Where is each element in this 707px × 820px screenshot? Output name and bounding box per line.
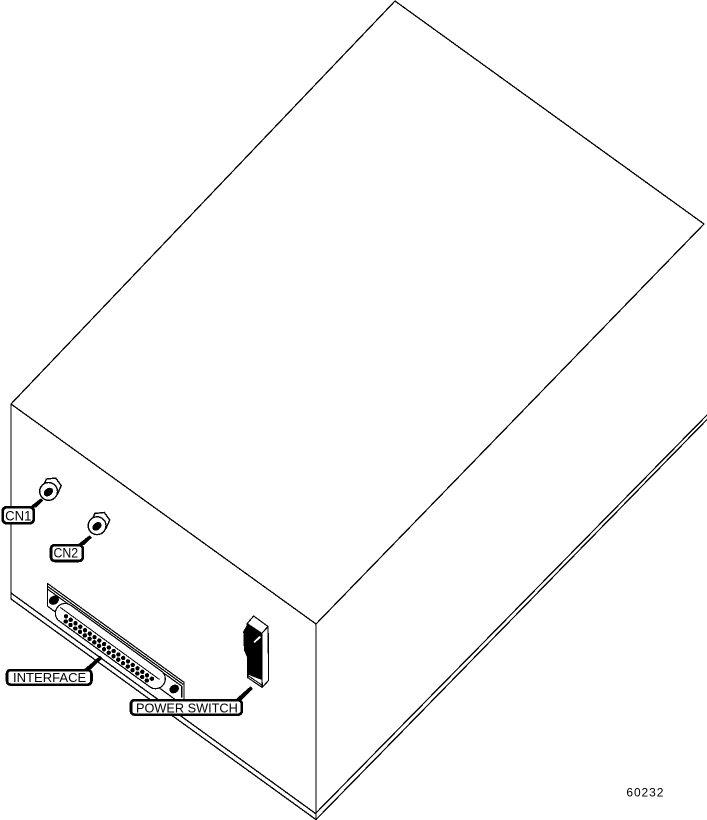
svg-text:CN1: CN1 <box>5 508 31 523</box>
svg-text:CN2: CN2 <box>54 546 79 561</box>
svg-text:POWER SWITCH: POWER SWITCH <box>136 700 238 715</box>
svg-text:INTERFACE: INTERFACE <box>13 670 86 685</box>
svg-text:60232: 60232 <box>626 785 663 799</box>
